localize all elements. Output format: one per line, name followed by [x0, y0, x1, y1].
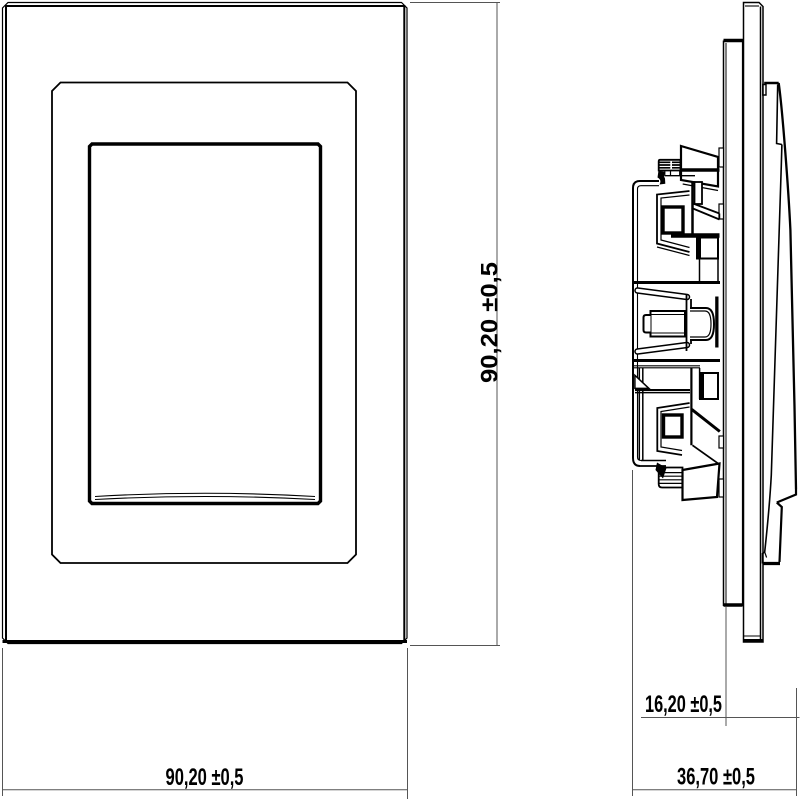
svg-text:90,20 ±0,5: 90,20 ±0,5: [477, 262, 504, 383]
svg-text:90,20 ±0,5: 90,20 ±0,5: [166, 764, 244, 791]
svg-text:36,70 ±0,5: 36,70 ±0,5: [677, 764, 755, 791]
svg-text:16,20 ±0,5: 16,20 ±0,5: [645, 691, 722, 718]
